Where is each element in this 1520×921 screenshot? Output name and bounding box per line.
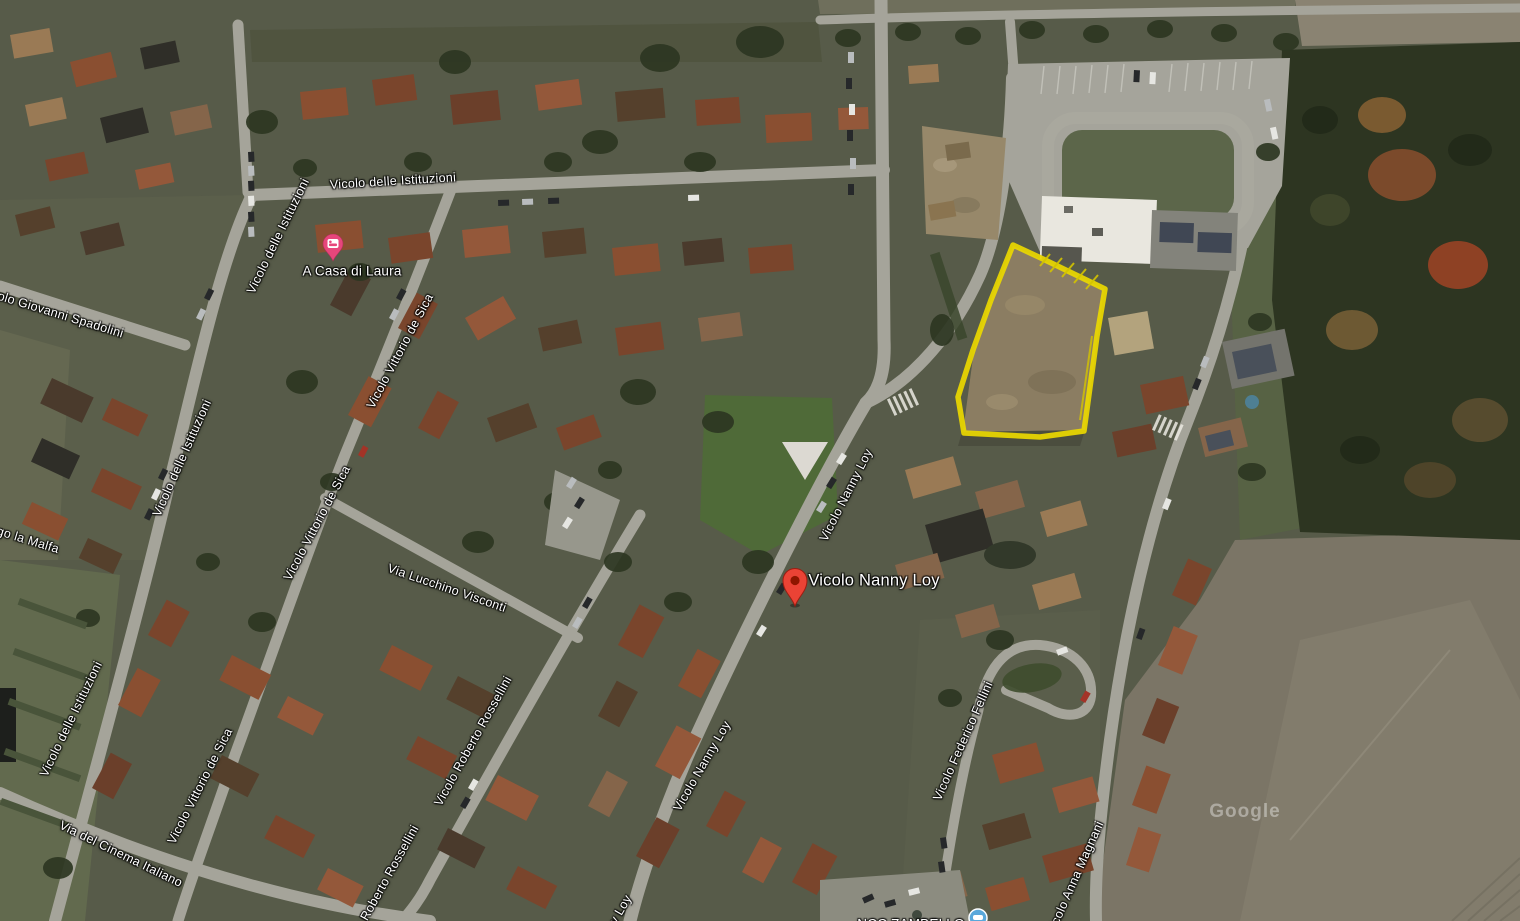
car-service-icon[interactable] bbox=[969, 909, 987, 921]
poi-label-ncc-zambello[interactable]: NCC ZAMBELLO bbox=[857, 917, 964, 921]
search-result-label[interactable]: Vicolo Nanny Loy bbox=[808, 572, 939, 591]
poi-label-a-casa-di-laura[interactable]: A Casa di Laura bbox=[302, 264, 401, 279]
satellite-map[interactable]: Vicolo delle Istituzioni Vicolo delle Is… bbox=[0, 0, 1520, 921]
search-result-pin[interactable] bbox=[782, 567, 809, 608]
satellite-imagery bbox=[0, 0, 1520, 921]
google-watermark: Google bbox=[1209, 801, 1280, 823]
lodging-icon[interactable] bbox=[322, 234, 344, 262]
